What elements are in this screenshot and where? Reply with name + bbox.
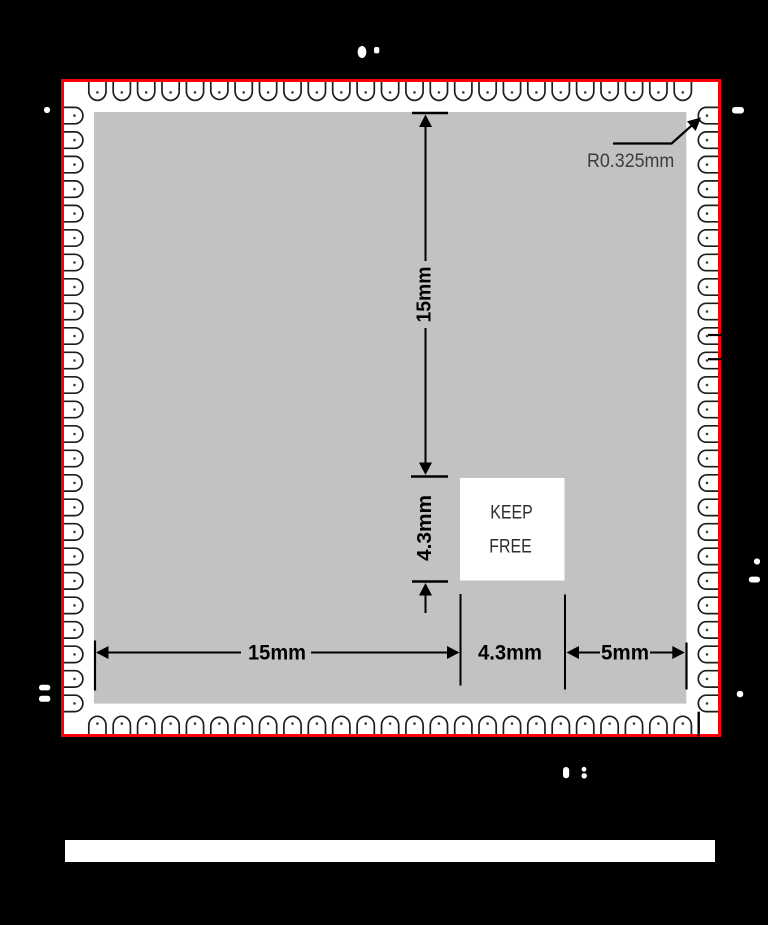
- svg-text:15mm: 15mm: [414, 267, 436, 323]
- svg-text:FREE: FREE: [489, 535, 532, 557]
- svg-text:5mm: 5mm: [601, 642, 649, 665]
- svg-text:R0.325mm: R0.325mm: [587, 149, 674, 171]
- svg-text:4.3mm: 4.3mm: [413, 495, 436, 561]
- svg-text:4.3mm: 4.3mm: [478, 641, 542, 664]
- svg-text:KEEP: KEEP: [490, 501, 533, 523]
- svg-text:15mm: 15mm: [248, 641, 306, 664]
